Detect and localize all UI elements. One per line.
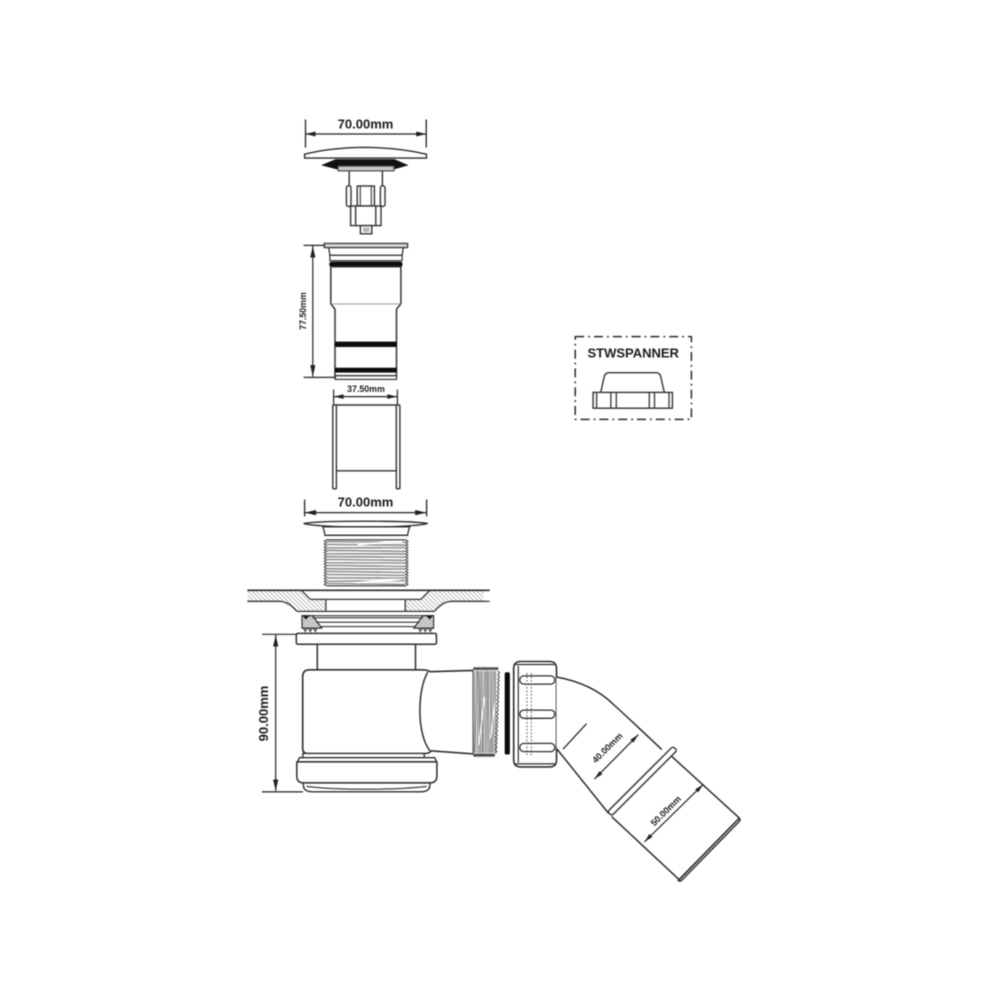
svg-text:90.00mm: 90.00mm: [256, 686, 271, 742]
svg-text:77.50mm: 77.50mm: [298, 292, 308, 330]
svg-text:70.00mm: 70.00mm: [338, 116, 394, 131]
svg-text:37.50mm: 37.50mm: [347, 384, 385, 394]
svg-text:STWSPANNER: STWSPANNER: [587, 346, 679, 361]
svg-text:70.00mm: 70.00mm: [338, 495, 394, 510]
